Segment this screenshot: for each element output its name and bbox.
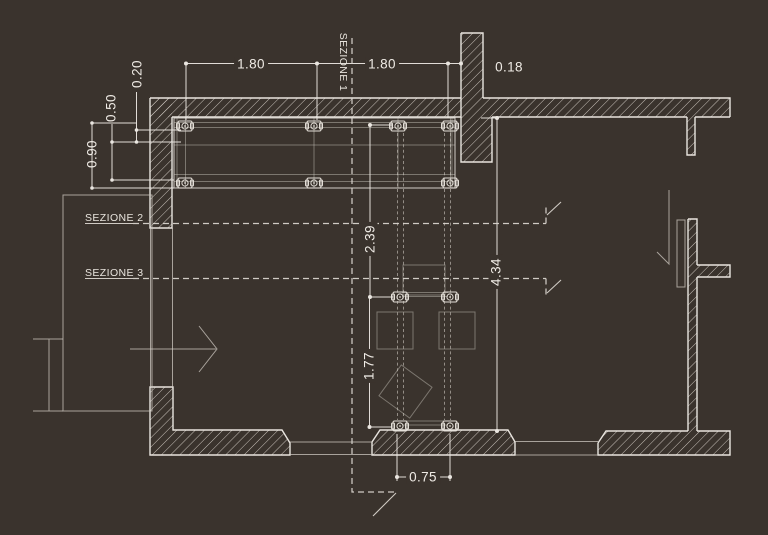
left-window xyxy=(33,339,63,411)
left-wall xyxy=(150,98,172,228)
floor-plan-drawing: 1.80 1.80 0.18 0.20 0.50 0.90 2.39 1.77 … xyxy=(0,0,768,535)
dim-label-018: 0.18 xyxy=(492,60,526,75)
openings xyxy=(151,228,599,455)
dim-label-020: 0.20 xyxy=(130,57,145,91)
section-3-arrow xyxy=(547,280,561,293)
fitting-icon xyxy=(442,292,459,302)
furniture-rotated-square xyxy=(379,365,432,418)
dim-label-090: 0.90 xyxy=(85,137,100,171)
top-pier xyxy=(461,117,492,162)
bottom-right-wall xyxy=(598,431,730,455)
top-right-fin xyxy=(687,117,695,155)
bottom-center-pier xyxy=(372,430,515,455)
furniture-square-left xyxy=(377,312,413,349)
section-3-label: SEZIONE 3 xyxy=(85,267,143,279)
entrance-arrow xyxy=(130,326,217,372)
dim-label-177: 1.77 xyxy=(362,349,377,383)
fitting-icon xyxy=(306,178,323,188)
dim-label-180-right: 1.80 xyxy=(365,57,399,72)
door-leaf xyxy=(677,220,685,287)
right-sliding-door xyxy=(657,190,685,287)
bottom-left-wall xyxy=(150,387,290,455)
dim-label-434: 4.34 xyxy=(489,255,504,289)
right-stub-wall xyxy=(697,265,730,277)
dim-label-050: 0.50 xyxy=(104,91,119,125)
bottom-opening-left xyxy=(290,442,372,455)
right-fin-wall xyxy=(688,219,697,431)
section-1-label: SEZIONE 1 xyxy=(337,33,349,91)
section-2-line xyxy=(133,204,546,224)
section-1-arrow xyxy=(373,493,396,516)
dim-label-180-left: 1.80 xyxy=(234,57,268,72)
dim-label-075: 0.75 xyxy=(406,470,440,485)
door-direction-arrow xyxy=(657,190,669,264)
track-dashed-lines xyxy=(398,133,451,420)
upper-partition-wall xyxy=(461,33,483,98)
section-2-arrow xyxy=(547,202,561,215)
fitting-icon xyxy=(392,292,409,302)
dim-label-239: 2.39 xyxy=(363,222,378,256)
dim-239 xyxy=(370,125,393,297)
section-2-label: SEZIONE 2 xyxy=(85,212,143,224)
top-wall xyxy=(150,98,730,117)
walls-outline xyxy=(150,33,730,455)
furniture-rect xyxy=(403,265,445,295)
bottom-opening-right xyxy=(515,442,598,456)
adjacent-room-outline xyxy=(63,195,152,411)
adjacent-room xyxy=(33,195,152,411)
roller-fittings xyxy=(177,121,459,431)
left-opening-edges xyxy=(151,228,173,387)
furniture xyxy=(377,265,475,418)
walls-hatch xyxy=(150,33,730,455)
section-3-line xyxy=(133,279,546,297)
fitting-icon xyxy=(177,178,194,188)
